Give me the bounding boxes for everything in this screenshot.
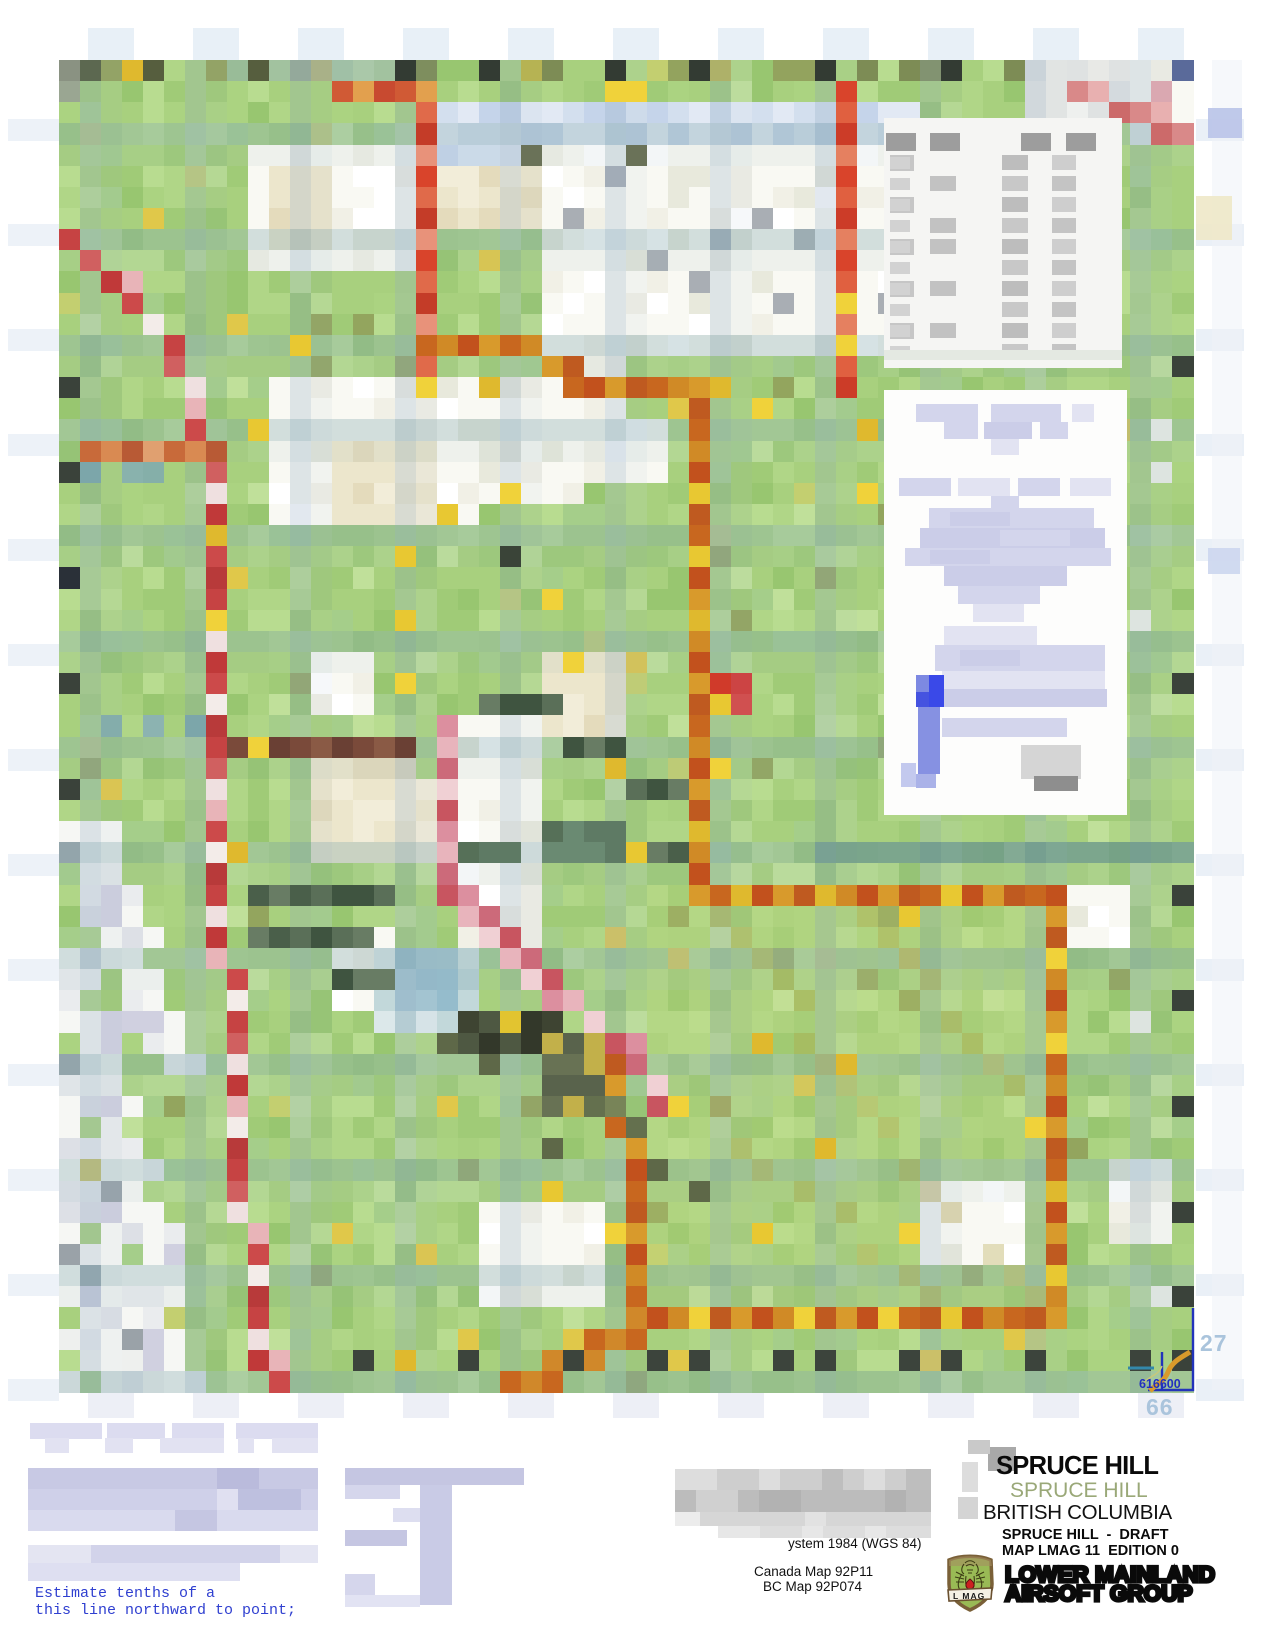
svg-text:MAP LMAG 11 EDITION 0: MAP LMAG 11 EDITION 0 [1002,1543,1179,1559]
svg-text:SPRUCE HILL: SPRUCE HILL [1010,1479,1148,1502]
svg-text:Canada Map 92P11: Canada Map 92P11 [754,1564,873,1579]
svg-text:L MAG: L MAG [953,1591,985,1601]
svg-text:616600: 616600 [1139,1377,1181,1391]
svg-text:BRITISH COLUMBIA: BRITISH COLUMBIA [983,1501,1172,1524]
svg-text:Estimate tenths of a: Estimate tenths of a [35,1585,215,1602]
svg-text:AIRSOFT GROUP: AIRSOFT GROUP [1005,1581,1193,1606]
svg-text:SPRUCE HILL - DRAFT: SPRUCE HILL - DRAFT [1002,1527,1169,1543]
svg-text:BC Map 92P074: BC Map 92P074 [763,1579,863,1594]
svg-text:27: 27 [1200,1330,1228,1356]
svg-text:66: 66 [1146,1394,1174,1420]
svg-text:SPRUCE HILL: SPRUCE HILL [996,1452,1158,1480]
svg-text:ystem 1984 (WGS 84): ystem 1984 (WGS 84) [788,1536,922,1551]
svg-text:this line northward to point;: this line northward to point; [35,1602,296,1619]
